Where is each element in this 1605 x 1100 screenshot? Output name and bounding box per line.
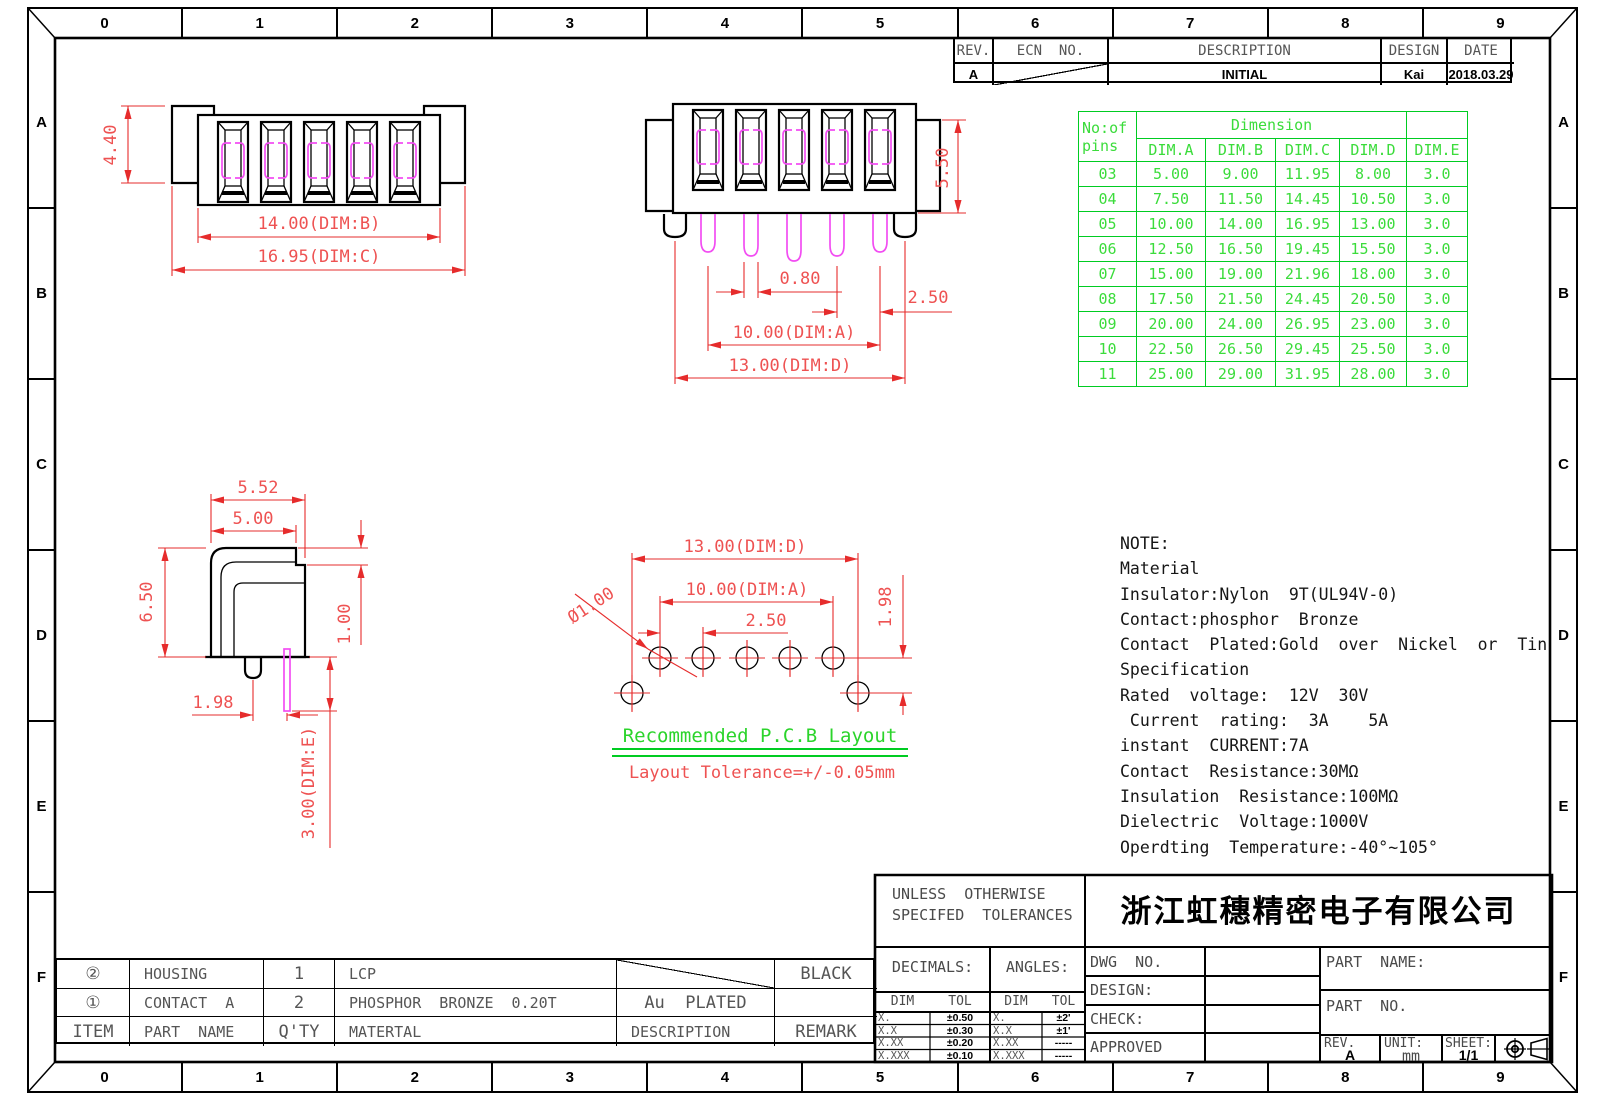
note-line: Operdting Temperature:-40°~105°: [1120, 835, 1550, 860]
dim-table-cell: 05: [1079, 212, 1137, 237]
dim-label-pcb-dim-d: 13.00(DIM:D): [684, 537, 807, 557]
dim-table-cell: 8.00: [1340, 162, 1407, 187]
drawing-sheet: 0123456789 0123456789 ABCDEF ABCDEF .ln2…: [0, 0, 1605, 1100]
dim-table-cell: 08: [1079, 287, 1137, 312]
dim-col-header: DIM.B: [1206, 139, 1276, 162]
contact-terminal: [783, 130, 792, 164]
dim-table-cell: 7.50: [1137, 187, 1206, 212]
dim-table-cell: 24.00: [1206, 312, 1276, 337]
dim-table-cell: 28.00: [1340, 362, 1407, 387]
contact-terminal: [222, 143, 231, 178]
tol-value-cell: -----: [1042, 1050, 1085, 1063]
contact-terminal: [697, 130, 706, 164]
dim-table-cell: 14.00: [1206, 212, 1276, 237]
note-line: Insulation Resistance:100MΩ: [1120, 784, 1550, 809]
dim-label-side-h: 6.50: [137, 582, 157, 623]
dim-table-cell: 15.00: [1137, 262, 1206, 287]
dim-table-cell: 03: [1079, 162, 1137, 187]
tolerance-note: UNLESS OTHERWISESPECIFED TOLERANCES: [892, 884, 1073, 926]
tol-dim-cell: X.: [990, 1012, 1042, 1025]
dim-label-pcb-pitch: 2.50: [746, 611, 787, 631]
dim-table-cell: 19.00: [1206, 262, 1276, 287]
date-value: 2018.03.29: [1448, 62, 1514, 85]
dim-table-cell: 3.0: [1407, 312, 1468, 337]
contact-terminal: [351, 143, 360, 178]
contact-terminal: [308, 143, 317, 178]
dim-table-cell: 3.0: [1407, 162, 1468, 187]
note-line: Rated voltage: 12V 30V: [1120, 683, 1550, 708]
ecn-value: [994, 62, 1109, 85]
dim-table-cell: 11.95: [1276, 162, 1340, 187]
connector-pin: [830, 214, 844, 256]
rev-header-design: DESIGN: [1382, 39, 1448, 62]
dim-table-cell: 26.95: [1276, 312, 1340, 337]
note-line: Contact Plated:Gold over Nickel or Tin: [1120, 632, 1550, 657]
decimal-tolerance-rows: X.±0.50X.X±0.30X.XX±0.20X.XXX±0.10: [875, 1012, 990, 1062]
dimension-group-header: Dimension: [1137, 112, 1407, 139]
pcb-layout-view: 13.00(DIM:D) 10.00(DIM:A) 2.50 Ø1.00 1.9…: [564, 537, 912, 783]
dim-label-side-offset: 1.98: [193, 693, 234, 713]
note-line: instant CURRENT:7A: [1120, 733, 1550, 758]
rev-header-description: DESCRIPTION: [1109, 39, 1382, 62]
connector-pin: [787, 214, 801, 261]
dim-label-pcb-hole: Ø1.00: [564, 583, 618, 628]
part-name-label: PART NAME:: [1326, 953, 1425, 971]
rev-cell-value: A: [1320, 1047, 1380, 1063]
dim-table-cell: 3.0: [1407, 287, 1468, 312]
tol-dim-cell: X.XXX: [990, 1050, 1042, 1063]
dim-col-header: DIM.E: [1407, 139, 1468, 162]
dim-table-cell: 13.00: [1340, 212, 1407, 237]
decimals-label: DECIMALS:: [875, 958, 990, 976]
dim-label-dim-b: 14.00(DIM:B): [258, 214, 381, 234]
col-header-remark: REMARK: [775, 1017, 877, 1046]
dim-table-cell: 19.45: [1276, 237, 1340, 262]
dim-table-cell: 24.45: [1276, 287, 1340, 312]
dim-col-header: DIM.C: [1276, 139, 1340, 162]
top-view: 5.50 0.80 2.50 10.00(DIM:A) 13.00(DIM:D): [646, 104, 966, 384]
dim-label-top-dim-d: 13.00(DIM:D): [729, 356, 852, 376]
dim-table-cell: 3.0: [1407, 262, 1468, 287]
rev-header-rev: REV.: [955, 39, 994, 62]
dim-table-cell: 3.0: [1407, 187, 1468, 212]
dim-label-pin-width: 0.80: [780, 269, 821, 289]
dim-label-side-dim-e: 3.00(DIM:E): [299, 727, 319, 840]
unit-value: mm: [1380, 1047, 1442, 1065]
note-line: NOTE:: [1120, 531, 1550, 556]
dim-table-cell: 29.00: [1206, 362, 1276, 387]
dim-table-cell: 25.50: [1340, 337, 1407, 362]
dim-table-cell: 09: [1079, 312, 1137, 337]
sheet-value: 1/1: [1442, 1047, 1495, 1063]
pin-dimension-table: No:ofpinsDimensionDIM.ADIM.BDIM.CDIM.DDI…: [1078, 111, 1468, 387]
dim-table-cell: 11: [1079, 362, 1137, 387]
dim-table-cell: 15.50: [1340, 237, 1407, 262]
dim-label-front-height: 4.40: [101, 125, 121, 166]
material-table: ② HOUSING 1 LCP BLACK ① CONTACT A 2 PHOS…: [55, 958, 875, 1044]
tol-value-cell: ±0.30: [930, 1025, 990, 1038]
note-line: Contact:phosphor Bronze: [1120, 607, 1550, 632]
tol-dim-cell: X.XX: [875, 1037, 930, 1050]
dim-table-cell: 3.0: [1407, 212, 1468, 237]
tol-value-cell: ±2': [1042, 1012, 1085, 1025]
dim-table-cell: 21.50: [1206, 287, 1276, 312]
rev-header-date: DATE: [1448, 39, 1514, 62]
dim-table-cell: 10: [1079, 337, 1137, 362]
dim-table-cell: 17.50: [1137, 287, 1206, 312]
contact-terminal: [826, 130, 835, 164]
material-cell: PHOSPHOR BRONZE 0.20T: [335, 989, 617, 1017]
company-name: 浙江虹穗精密电子有限公司: [1085, 886, 1552, 931]
note-line: Insulator:Nylon 9T(UL94V-0): [1120, 582, 1550, 607]
connector-pin: [873, 214, 887, 252]
item-number: ①: [57, 989, 130, 1017]
col-header-material: MATERTAL: [335, 1017, 617, 1046]
dim-table-cell: 23.00: [1340, 312, 1407, 337]
tol-dim-cell: X.XXX: [875, 1050, 930, 1063]
description-cell: Au PLATED: [617, 989, 775, 1017]
dim-table-cell: 31.95: [1276, 362, 1340, 387]
description-cell: [617, 960, 775, 989]
dim-label-side-w2: 5.00: [233, 509, 274, 529]
pcb-layout-title: Recommended P.C.B Layout: [623, 725, 898, 747]
pins-col-header: No:ofpins: [1079, 112, 1137, 162]
note-line: Contact Resistance:30MΩ: [1120, 759, 1550, 784]
tol-col-label: TOL: [1042, 994, 1085, 1009]
description-value: INITIAL: [1109, 62, 1382, 85]
dim-col-header: DIM.D: [1340, 139, 1407, 162]
dim-table-cell: 9.00: [1206, 162, 1276, 187]
dim-table-cell: 14.45: [1276, 187, 1340, 212]
part-no-label: PART NO.: [1326, 997, 1407, 1015]
tol-value-cell: ±1': [1042, 1025, 1085, 1038]
dim-table-cell: 3.0: [1407, 337, 1468, 362]
dim-table-cell: 22.50: [1137, 337, 1206, 362]
rev-header-ecn: ECN NO.: [994, 39, 1109, 62]
rev-value: A: [955, 62, 994, 85]
item-number: ②: [57, 960, 130, 989]
dim-table-cell: 10.50: [1340, 187, 1407, 212]
dim-table-cell: 18.00: [1340, 262, 1407, 287]
dim-label-pcb-dim-a: 10.00(DIM:A): [686, 580, 809, 600]
angles-label: ANGLES:: [990, 958, 1085, 976]
dim-table-cell: 26.50: [1206, 337, 1276, 362]
dim-col-label: DIM: [990, 994, 1042, 1009]
dim-table-cell: 5.00: [1137, 162, 1206, 187]
qty-cell: 1: [264, 960, 335, 989]
tol-dim-cell: X.XX: [990, 1037, 1042, 1050]
dim-table-cell: 16.50: [1206, 237, 1276, 262]
tol-dim-cell: X.X: [875, 1025, 930, 1038]
dim-table-cell: 20.50: [1340, 287, 1407, 312]
note-line: Material: [1120, 556, 1550, 581]
tol-col-label: TOL: [930, 994, 990, 1009]
note-line: Specification: [1120, 657, 1550, 682]
contact-terminal: [394, 143, 403, 178]
dim-table-cell: 3.0: [1407, 362, 1468, 387]
tol-dim-cell: X.X: [990, 1025, 1042, 1038]
dwg-no-label: DWG NO.: [1090, 953, 1162, 971]
connector-pin: [744, 214, 758, 256]
remark-cell: BLACK: [775, 960, 877, 989]
connector-pin: [701, 214, 715, 252]
col-header-item: ITEM: [57, 1017, 130, 1046]
design-label: DESIGN:: [1090, 981, 1153, 999]
col-header-description: DESCRIPTION: [617, 1017, 775, 1046]
dim-col-label: DIM: [875, 994, 930, 1009]
approved-label: APPROVED: [1090, 1038, 1162, 1056]
tol-dim-cell: X.: [875, 1012, 930, 1025]
dim-label-top-height: 5.50: [933, 148, 953, 189]
dim-table-cell: 04: [1079, 187, 1137, 212]
dim-table-cell: 3.0: [1407, 237, 1468, 262]
tol-value-cell: ±0.10: [930, 1050, 990, 1063]
dim-label-side-w1: 5.52: [238, 478, 279, 498]
dim-table-cell: 10.00: [1137, 212, 1206, 237]
design-value: Kai: [1382, 62, 1448, 85]
dim-table-cell: 20.00: [1137, 312, 1206, 337]
dim-table-cell: 07: [1079, 262, 1137, 287]
check-label: CHECK:: [1090, 1010, 1144, 1028]
angle-tolerance-rows: X.±2'X.X±1'X.XX-----X.XXX-----: [990, 1012, 1085, 1062]
dim-label-top-pitch: 2.50: [908, 288, 949, 308]
contact-terminal: [869, 130, 878, 164]
col-header-qty: Q'TY: [264, 1017, 335, 1046]
dim-table-cell: 12.50: [1137, 237, 1206, 262]
dim-table-cell: 29.45: [1276, 337, 1340, 362]
dim-label-dim-c: 16.95(DIM:C): [258, 247, 381, 267]
projection-symbol-icon: [1504, 1038, 1550, 1060]
tol-value-cell: ±0.20: [930, 1037, 990, 1050]
dim-label-pcb-offset: 1.98: [876, 587, 896, 628]
material-cell: LCP: [335, 960, 617, 989]
side-view: 5.52 5.00 6.50 1.00 1.98 3.00(DIM:E): [137, 478, 368, 848]
blank-cell: [1407, 112, 1468, 139]
col-header-part-name: PART NAME: [130, 1017, 264, 1046]
part-name-cell: CONTACT A: [130, 989, 264, 1017]
dim-table-cell: 16.95: [1276, 212, 1340, 237]
qty-cell: 2: [264, 989, 335, 1017]
contact-terminal: [265, 143, 274, 178]
contact-terminal: [740, 130, 749, 164]
tol-value-cell: ±0.50: [930, 1012, 990, 1025]
dim-table-cell: 06: [1079, 237, 1137, 262]
dim-col-header: DIM.A: [1137, 139, 1206, 162]
note-line: Current rating: 3A 5A: [1120, 708, 1550, 733]
dim-label-side-step: 1.00: [335, 604, 355, 645]
note-line: Dielectric Voltage:1000V: [1120, 809, 1550, 834]
dim-label-top-dim-a: 10.00(DIM:A): [733, 323, 856, 343]
dim-table-cell: 11.50: [1206, 187, 1276, 212]
front-view: 4.40 14.00(DIM:B) 16.95(DIM:C): [101, 106, 465, 276]
pcb-layout-tolerance: Layout Tolerance=+/-0.05mm: [629, 763, 895, 783]
revision-table: REV. ECN NO. DESCRIPTION DESIGN DATE A I…: [953, 37, 1512, 83]
notes-block: NOTE:MaterialInsulator:Nylon 9T(UL94V-0)…: [1120, 531, 1550, 860]
tol-value-cell: -----: [1042, 1037, 1085, 1050]
remark-cell: [775, 989, 877, 1017]
dim-table-cell: 21.96: [1276, 262, 1340, 287]
part-name-cell: HOUSING: [130, 960, 264, 989]
dim-table-cell: 25.00: [1137, 362, 1206, 387]
